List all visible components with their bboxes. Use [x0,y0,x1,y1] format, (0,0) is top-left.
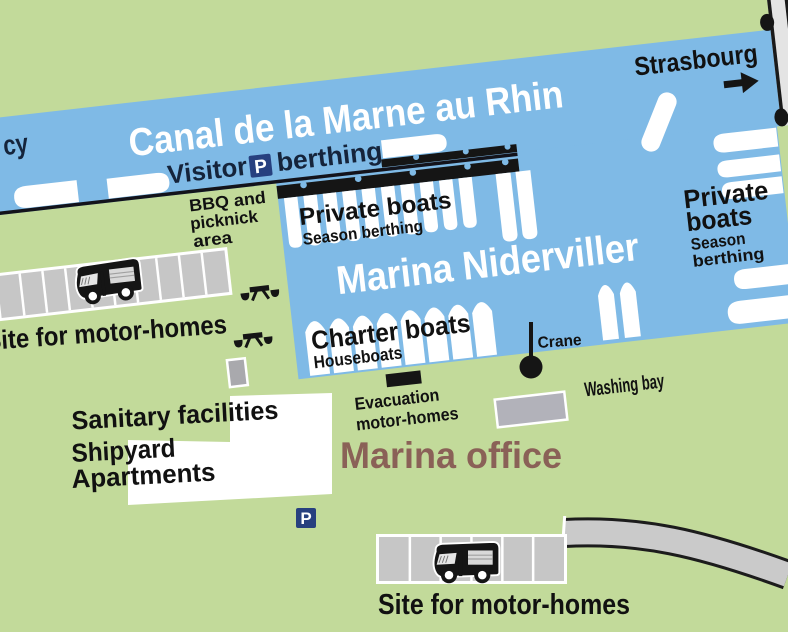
svg-text:Marina office: Marina office [340,435,562,476]
svg-text:P: P [300,509,311,528]
svg-text:Crane: Crane [537,332,582,352]
svg-text:Site for motor-homes: Site for motor-homes [378,589,630,621]
svg-text:cy: cy [1,127,30,161]
